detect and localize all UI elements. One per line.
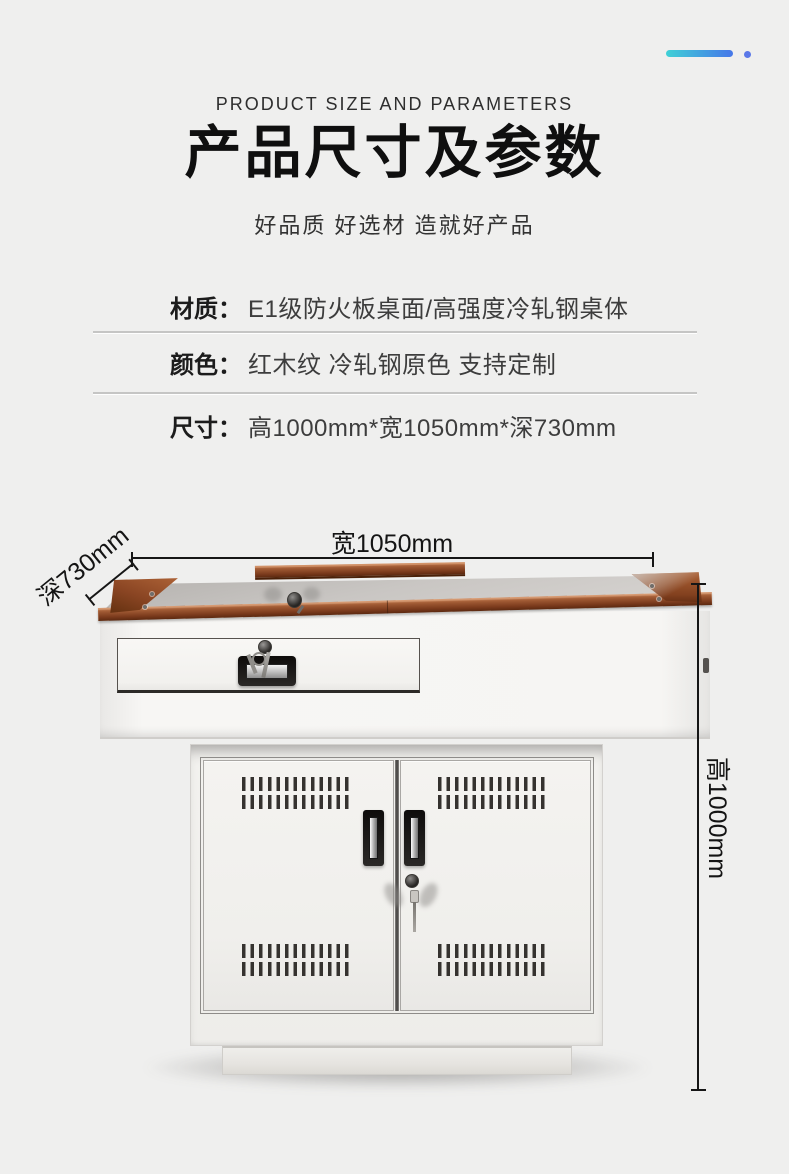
cabinet-lock	[405, 874, 419, 888]
tick	[652, 552, 654, 567]
side-hook	[703, 658, 709, 673]
book-stop-rail	[255, 562, 465, 580]
accent-dot	[744, 51, 751, 58]
tick	[691, 1089, 706, 1091]
vent-grille	[242, 962, 354, 976]
tick	[691, 583, 706, 585]
width-dimension-label: 宽1050mm	[331, 524, 453, 560]
spec-label: 尺寸：	[170, 408, 242, 443]
accent-pill	[666, 50, 733, 57]
spec-row-size: 尺寸： 高1000mm*宽1050mm*深730mm	[93, 394, 697, 456]
spec-value: 高1000mm*宽1050mm*深730mm	[248, 408, 616, 443]
vent-grille	[242, 777, 354, 791]
screw	[650, 584, 654, 588]
door-handle-left	[363, 810, 384, 866]
screw	[150, 592, 154, 596]
spec-row-material: 材质： E1级防火板桌面/高强度冷轧钢桌体	[93, 282, 697, 333]
height-dimension-label: 高1000mm	[701, 757, 737, 879]
spec-value: E1级防火板桌面/高强度冷轧钢桌体	[248, 289, 629, 324]
cabinet-key-shaft	[413, 902, 416, 932]
vent-grille	[242, 944, 354, 958]
vent-grille	[438, 777, 550, 791]
door-handle-right	[404, 810, 425, 866]
eyebrow-text: PRODUCT SIZE AND PARAMETERS	[0, 94, 789, 115]
screw	[143, 605, 147, 609]
handle-chrome	[369, 817, 378, 859]
vent-grille	[438, 795, 550, 809]
spec-row-color: 颜色： 红木纹 冷轧钢原色 支持定制	[93, 333, 697, 394]
key-blur	[303, 587, 320, 601]
key-blur	[264, 587, 282, 602]
vent-grille	[438, 962, 550, 976]
spec-value: 红木纹 冷轧钢原色 支持定制	[248, 345, 556, 380]
spec-label: 颜色：	[170, 345, 242, 380]
plinth-base	[222, 1046, 572, 1075]
spec-table: 材质： E1级防火板桌面/高强度冷轧钢桌体 颜色： 红木纹 冷轧钢原色 支持定制…	[93, 282, 697, 456]
vent-grille	[242, 795, 354, 809]
product-detail-page: PRODUCT SIZE AND PARAMETERS 产品尺寸及参数 好品质 …	[0, 0, 789, 1174]
height-dimension-line	[697, 583, 699, 1091]
tick	[85, 594, 95, 606]
tick	[128, 559, 138, 571]
page-title: 产品尺寸及参数	[0, 118, 789, 189]
handle-chrome	[410, 817, 419, 859]
page-subtitle: 好品质 好选材 造就好产品	[0, 208, 789, 240]
screw	[657, 597, 661, 601]
vent-grille	[438, 944, 550, 958]
spec-label: 材质：	[170, 289, 242, 324]
